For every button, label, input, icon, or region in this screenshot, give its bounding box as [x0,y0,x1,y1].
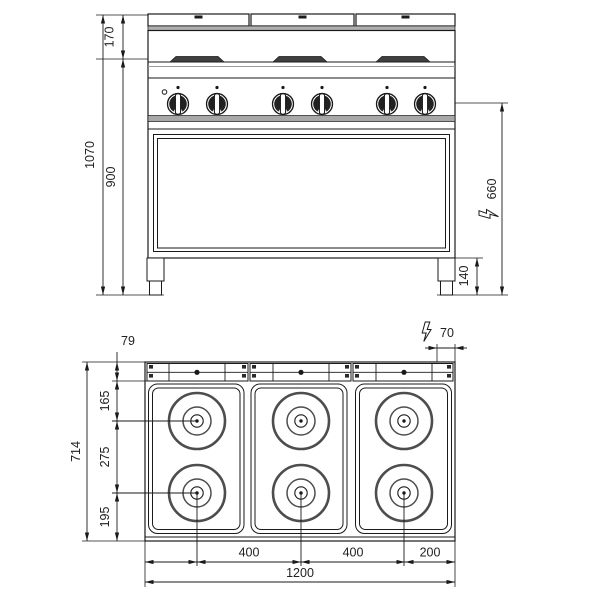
dim-label-back-rail: 79 [121,334,135,348]
cooktop-edge-band [148,26,455,31]
rail-block [242,374,246,378]
leg-foot [150,281,162,295]
dim-label-body-height: 900 [104,167,118,188]
unit-body [148,31,455,259]
rail-block [355,365,359,369]
dim-label-col-spacing-1: 400 [239,546,260,560]
rail-tick [299,16,307,19]
rail-block [447,365,451,369]
hotplate-edge [273,57,327,63]
front-view [147,14,455,295]
drawing-canvas: 170 1070 900 660 140 [0,0,600,600]
dim-label-total-width: 1200 [286,566,314,580]
dim-label-right-offset: 200 [420,546,441,560]
rail-block [355,374,359,378]
rail-dot [298,370,303,375]
dim-label-total-height: 1070 [83,141,97,169]
dim-label-row-spacing: 275 [98,447,112,468]
leg-foot [441,281,453,295]
rail-block [149,374,153,378]
dim-label-top-section: 170 [103,27,117,48]
rail-block [252,365,256,369]
panel-band [148,116,455,122]
rail-block [345,365,349,369]
hotplate-edge [376,57,430,63]
leg [147,258,164,281]
rail-dot [401,370,406,375]
rail-tick [402,16,410,19]
dim-label-leg-height: 140 [457,266,471,287]
range-dimension-drawing: 170 1070 900 660 140 [0,0,600,600]
rail-block [345,374,349,378]
rail-tick [195,16,203,19]
leg [438,258,455,281]
dim-label-col-spacing-2: 400 [343,546,364,560]
plan-back-rail [147,364,453,382]
rail-block [447,374,451,378]
plan-view [112,362,455,566]
dim-label-electric-height: 660 [485,179,499,200]
rail-block [149,365,153,369]
rail-dot [194,370,199,375]
dim-label-electric-offset: 70 [440,326,454,340]
electric-connection-icon [479,210,499,219]
dim-label-row1-offset: 165 [98,391,112,412]
rail-block [242,365,246,369]
hotplate-edge [170,57,224,63]
dim-label-front-offset: 195 [98,507,112,528]
rail-block [252,374,256,378]
electric-connection-icon [422,322,431,342]
dim-label-total-depth: 714 [69,441,83,462]
